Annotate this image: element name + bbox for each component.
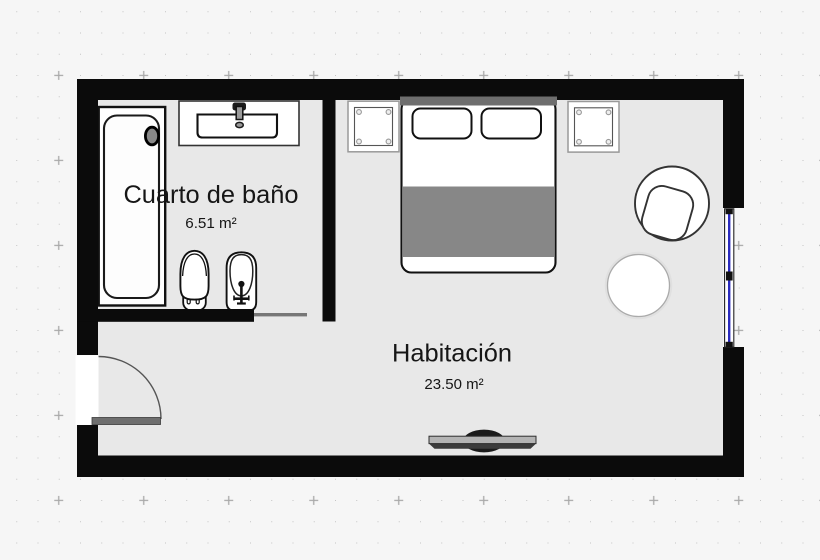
svg-text:6.51 m²: 6.51 m² [185,215,237,232]
svg-text:23.50 m²: 23.50 m² [424,376,483,393]
svg-text:Habitación: Habitación [392,340,512,368]
svg-text:Cuarto de baño: Cuarto de baño [123,181,298,209]
